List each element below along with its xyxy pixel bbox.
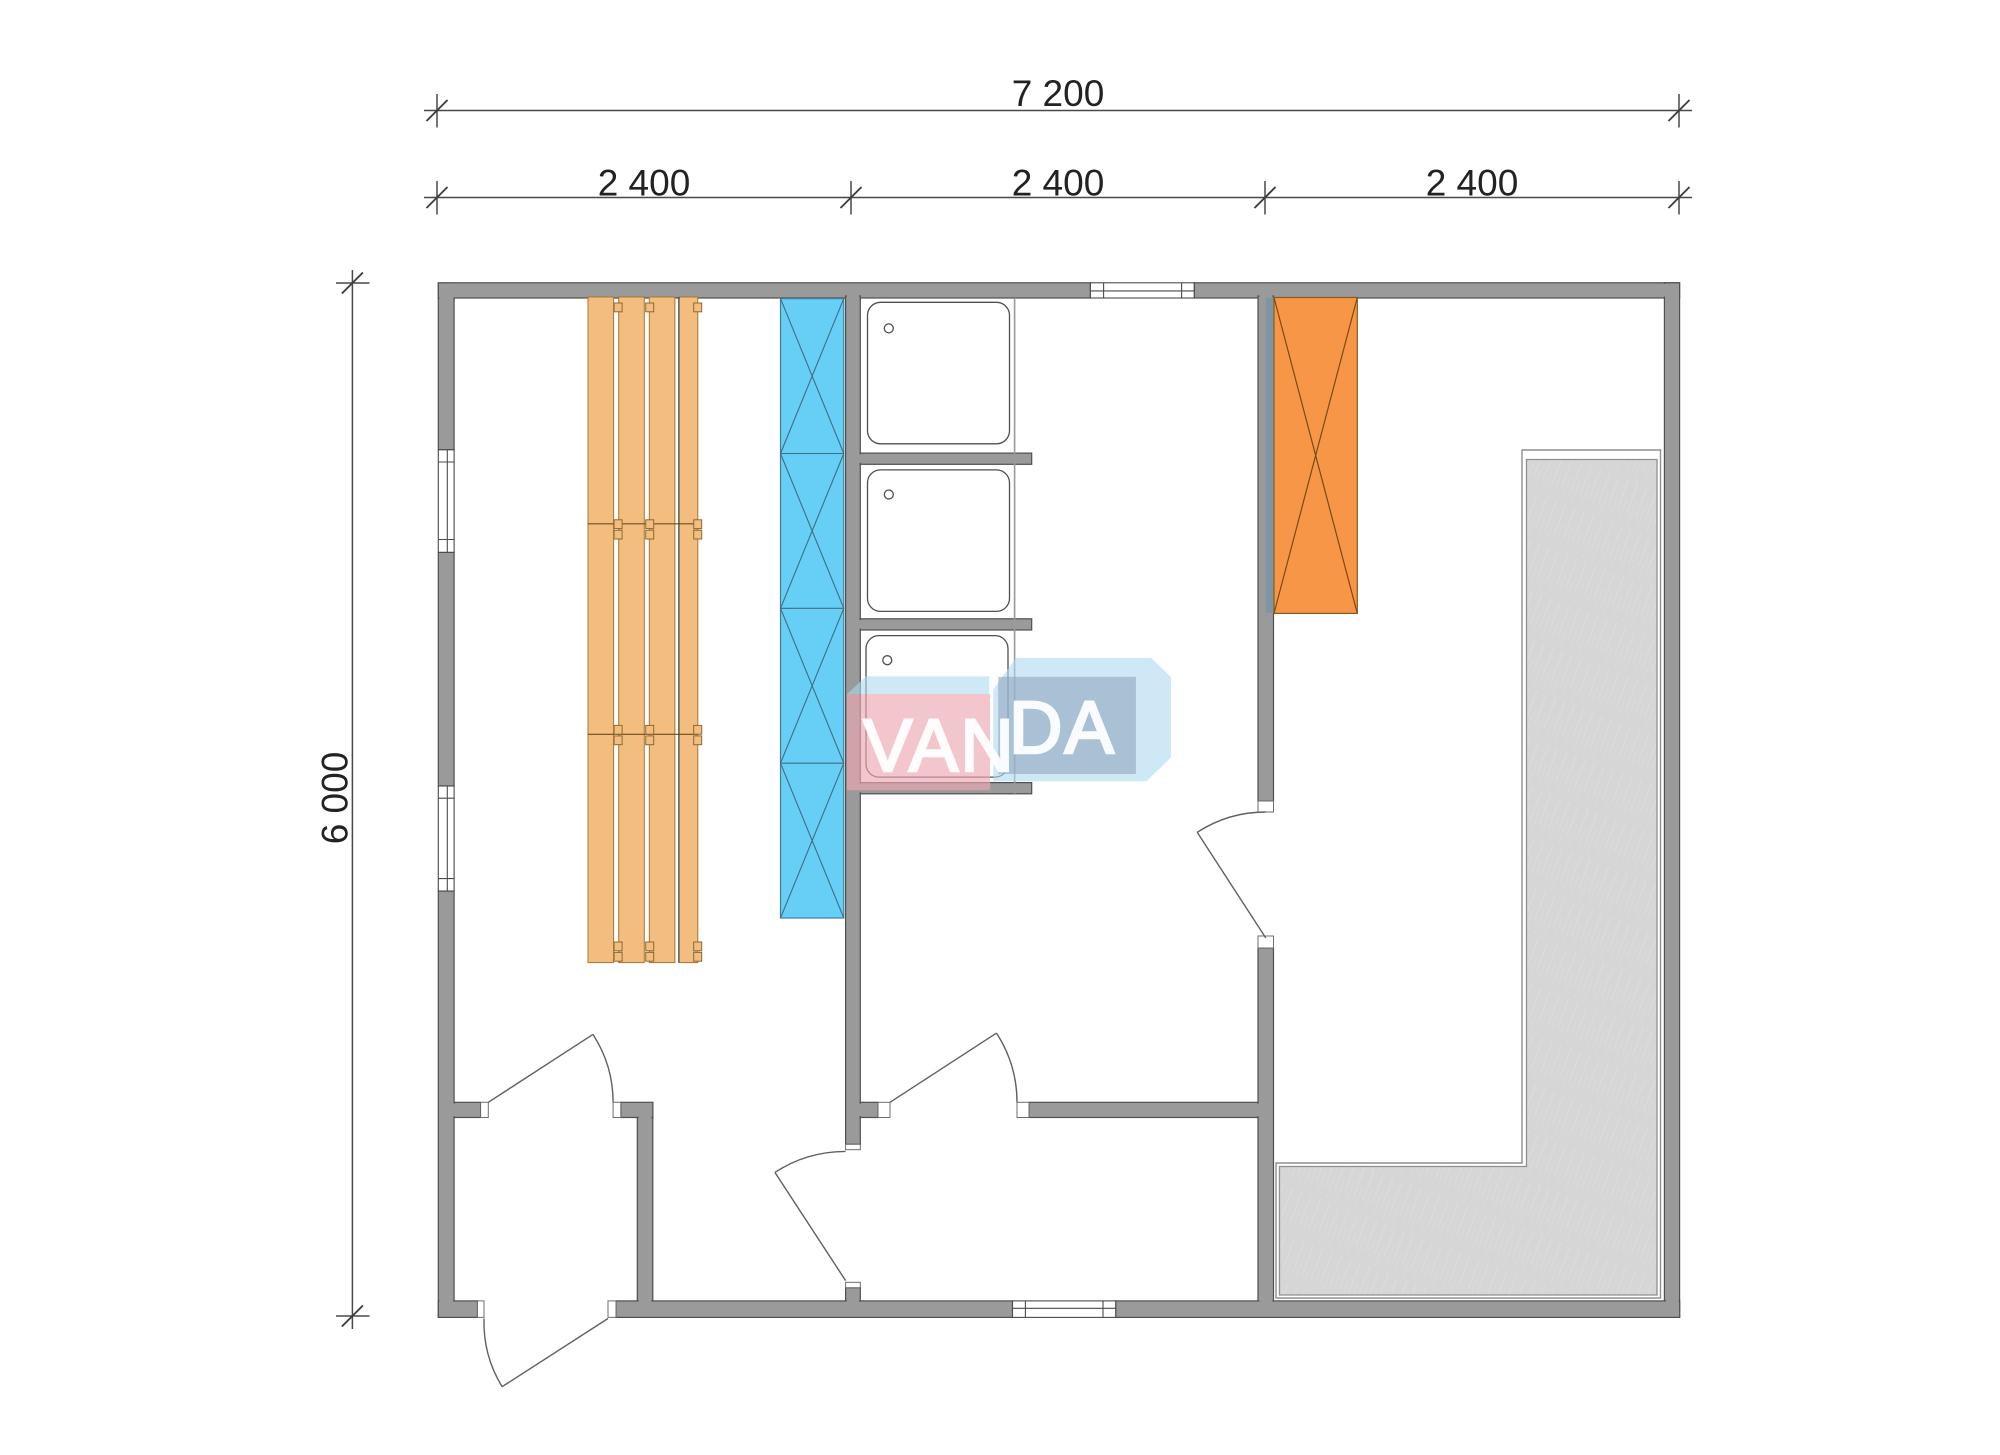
svg-text:2 400: 2 400 [1426, 163, 1519, 204]
svg-text:VAN: VAN [863, 704, 1016, 787]
svg-text:2 400: 2 400 [598, 163, 691, 204]
svg-text:DA: DA [1009, 686, 1116, 769]
svg-text:2 400: 2 400 [1012, 163, 1105, 204]
svg-text:6 000: 6 000 [315, 752, 356, 845]
svg-text:7 200: 7 200 [1012, 73, 1105, 114]
